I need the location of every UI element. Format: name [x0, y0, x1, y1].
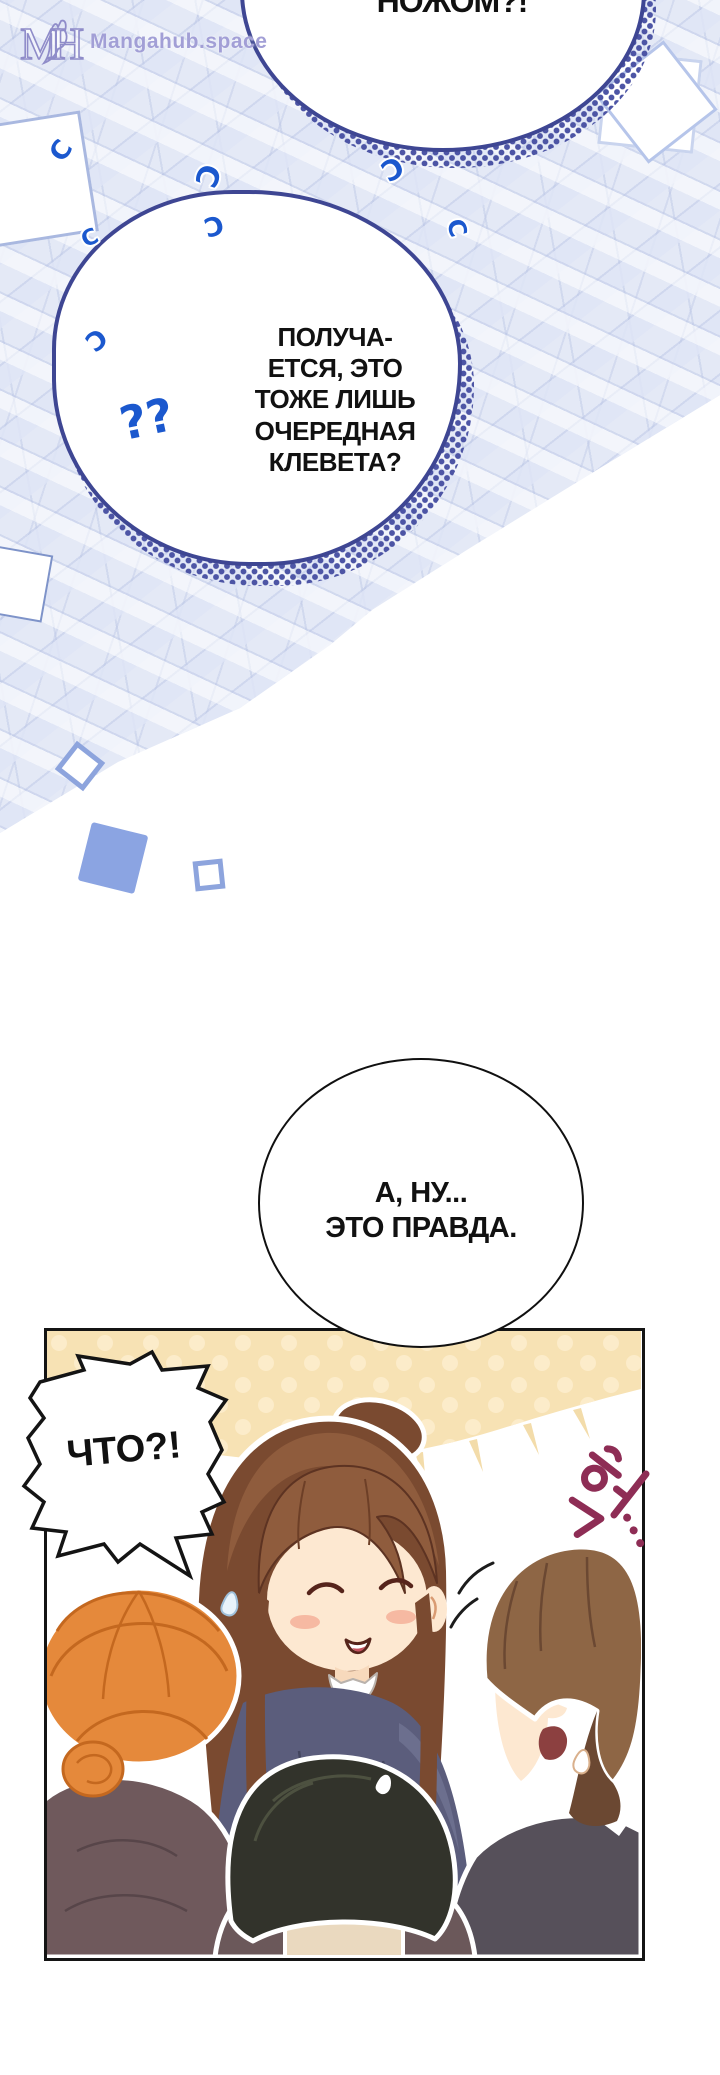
decor-square-filled — [78, 822, 149, 894]
sweat-drop-icon — [573, 1750, 589, 1773]
double-question-marks: ?? — [115, 387, 178, 451]
manhwa-page: M H Mangahub.space НОЖОМ?! ПОЛУЧА- ЕТСЯ,… — [0, 0, 720, 2075]
main-bubble-text: ПОЛУЧА- ЕТСЯ, ЭТО ТОЖЕ ЛИШЬ ОЧЕРЕДНАЯ КЛ… — [200, 322, 470, 478]
main-bubble-line: ОЧЕРЕДНАЯ — [200, 416, 470, 447]
main-bubble-line: КЛЕВЕТА? — [200, 447, 470, 478]
man-body — [445, 1816, 641, 1957]
circle-bubble-text: А, НУ... ЭТО ПРАВДА. — [325, 1176, 517, 1246]
circle-bubble-line: А, НУ... — [325, 1176, 517, 1211]
watermark-logo-icon: M H — [20, 16, 84, 68]
logo-letter-h: H — [51, 18, 84, 68]
main-bubble-line: ТОЖЕ ЛИШЬ — [200, 384, 470, 415]
watermark: M H Mangahub.space — [20, 16, 267, 68]
top-bubble-text: НОЖОМ?! — [372, 0, 532, 20]
shout-bubble: ЧТО?! — [12, 1346, 244, 1586]
main-bubble-line: ПОЛУЧА- — [200, 322, 470, 353]
girl-face — [267, 1527, 427, 1671]
main-bubble-line: ЕТСЯ, ЭТО — [200, 353, 470, 384]
character-right-man — [445, 1547, 641, 1957]
woman-hair-bun — [63, 1742, 123, 1796]
woman-hair — [47, 1588, 239, 1764]
watermark-site-name: Mangahub.space — [90, 30, 267, 54]
sfx-gasp — [520, 1390, 720, 1590]
man-open-mouth — [539, 1726, 567, 1760]
circle-bubble-line: ЭТО ПРАВДА. — [325, 1211, 517, 1246]
circle-speech-bubble: А, НУ... ЭТО ПРАВДА. — [258, 1058, 584, 1348]
decor-square-outline — [193, 859, 226, 892]
startle-marks — [451, 1563, 493, 1627]
